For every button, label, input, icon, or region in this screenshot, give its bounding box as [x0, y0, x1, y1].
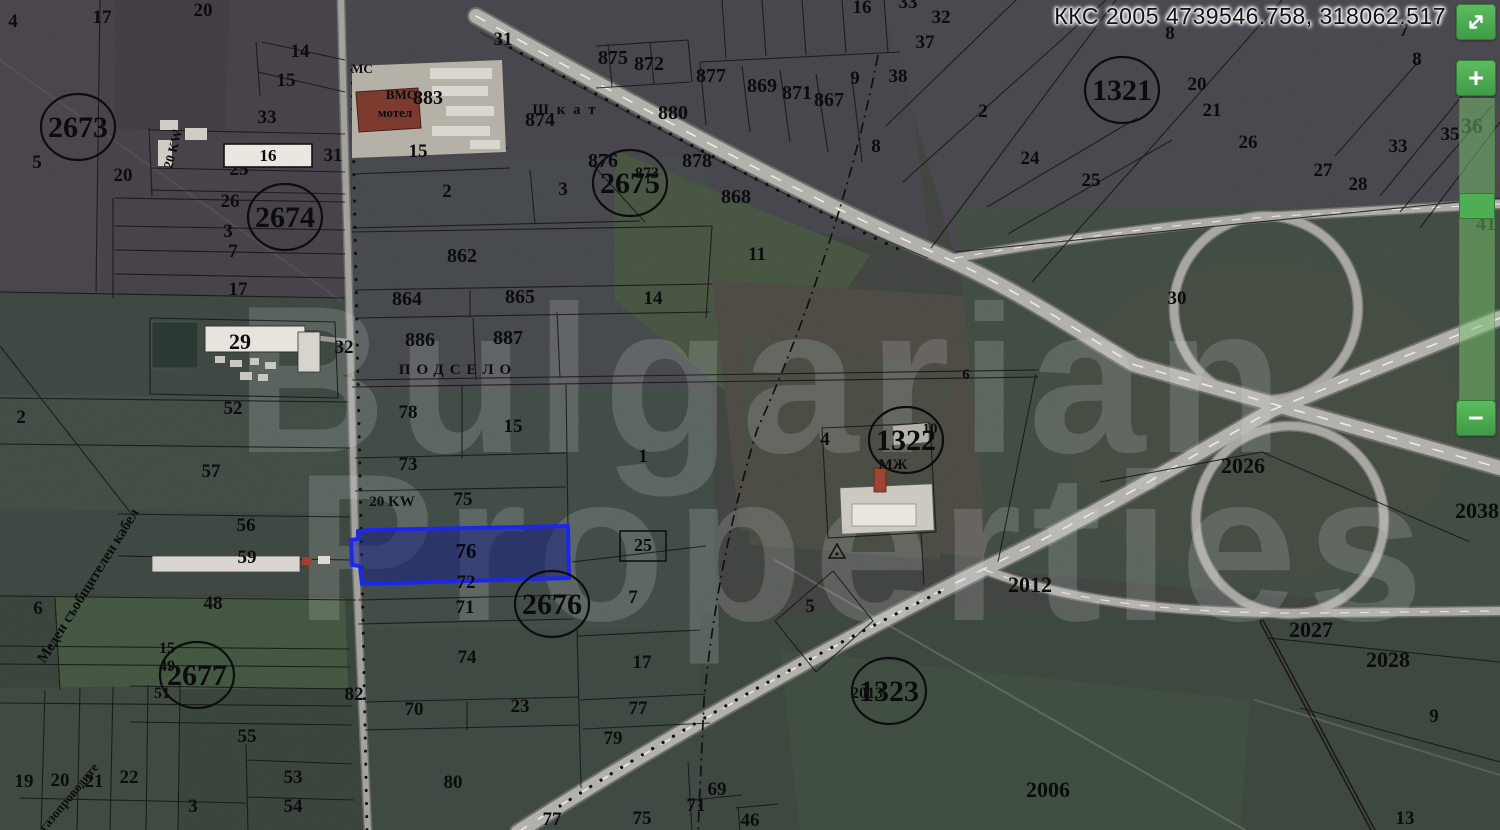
parcel-label: 3: [188, 796, 198, 817]
parcel-label: 2012: [1008, 572, 1052, 597]
parcel-label: 2027: [1289, 617, 1333, 642]
parcel-label: 55: [238, 726, 257, 747]
parcel-label: 71: [687, 795, 706, 816]
parcel-label: 24: [1021, 148, 1041, 169]
parcel-label: 75: [454, 489, 473, 510]
parcel-label: ВМС: [386, 87, 416, 102]
parcel-label: 21: [1203, 100, 1222, 121]
parcel-label: 872: [634, 53, 664, 75]
parcel-label: 7: [228, 241, 238, 262]
parcel-label: 23: [511, 696, 530, 717]
parcel-label: 6: [962, 367, 970, 383]
parcel-label: 14: [644, 288, 664, 309]
cadastral-region-number: 1321: [1092, 74, 1152, 107]
map-annotation-label: ПОДСЕЛО: [399, 362, 517, 378]
parcel-label: 7: [628, 587, 638, 608]
warehouse-building: [205, 326, 305, 352]
parcel-label: 20: [114, 165, 133, 186]
parcel-label: 13: [1396, 808, 1415, 829]
parcel-label: 867: [814, 89, 844, 111]
parcel-label: 38: [889, 66, 908, 87]
selected-parcel-number: 76: [456, 539, 477, 563]
parcel-label: 31: [494, 29, 513, 50]
parcel-label: 17: [633, 652, 653, 673]
fullscreen-button[interactable]: [1456, 4, 1496, 40]
diagonal-resize-icon: [1465, 11, 1487, 33]
parcel-label: 35: [1441, 124, 1460, 145]
parcel-label: 25: [1082, 170, 1101, 191]
parcel-label: 864: [392, 288, 422, 310]
parcel-label: 11: [748, 244, 766, 265]
parcel-label: 862: [447, 245, 477, 267]
zoom-in-button[interactable]: +: [1456, 60, 1496, 96]
parcel-label: 74: [458, 647, 478, 668]
parcel-label: 17: [93, 7, 113, 28]
parcel-label: 880: [658, 102, 688, 124]
parcel-label: 9: [850, 68, 860, 89]
parcel-label: 4: [8, 11, 18, 32]
parcel-label: 878: [682, 150, 712, 172]
parcel-label: 26: [1239, 132, 1258, 153]
parcel-label: МС: [351, 61, 373, 76]
parcel-label: 1: [638, 446, 648, 467]
parcel-label: 28: [1349, 174, 1368, 195]
parcel-label: 29: [229, 329, 251, 354]
cadastral-region-number: 2677: [167, 659, 227, 692]
parcel-label: 6: [33, 598, 43, 619]
parcel-label: 77: [543, 809, 563, 830]
parcel-label: 75: [633, 808, 652, 829]
cadastral-region-number: 2673: [48, 111, 108, 144]
parcel-label: 2: [978, 101, 988, 122]
parcel-label: 5: [805, 596, 815, 617]
parcel-label: 30: [1168, 288, 1187, 309]
parcel-label: 59: [238, 547, 257, 568]
parcel-label: 31: [324, 145, 343, 166]
parcel-label: 9: [1429, 706, 1439, 727]
parcel-label: 8: [1412, 49, 1422, 70]
parcel-label: 77: [629, 698, 649, 719]
cadastral-region-number: 2676: [522, 588, 582, 621]
parcel-label: 69: [708, 779, 727, 800]
parcel-label: 82: [345, 684, 364, 705]
parcel-label: 73: [399, 454, 418, 475]
parcel-label: 27: [1314, 160, 1334, 181]
parcel-label: 16: [853, 0, 872, 18]
parcel-label: 72: [457, 572, 476, 593]
parcel-label: 865: [505, 286, 535, 308]
zoom-slider-track[interactable]: [1459, 98, 1495, 400]
coordinate-display: ККС 2005 4739546.758, 318062.517: [1054, 3, 1446, 30]
parcel-label: 56: [237, 515, 256, 536]
cadastral-region-number: 1322: [876, 424, 936, 457]
parcel-label: 33: [258, 107, 277, 128]
parcel-label: 877: [696, 65, 726, 87]
parcel-label: 3: [223, 221, 233, 242]
parcel-label: 52: [224, 398, 243, 419]
parcel-label: 20: [1188, 74, 1207, 95]
parcel-label: мотел: [378, 105, 412, 120]
cadastral-region-number: 2674: [255, 201, 315, 234]
parcel-label: 70: [405, 699, 424, 720]
cadastral-region-number: 1323: [859, 675, 919, 708]
parcel-label: 5: [32, 152, 42, 173]
cadastral-region-number: 2675: [600, 167, 660, 200]
zoom-out-button[interactable]: −: [1456, 400, 1496, 436]
parcel-label: 2038: [1455, 498, 1499, 523]
parcel-label: 57: [202, 461, 222, 482]
parcel-label: 2006: [1026, 777, 1070, 802]
parcel-label: 16: [260, 146, 277, 165]
parcel-label: 4: [820, 429, 830, 450]
parcel-label: 871: [782, 82, 812, 104]
parcel-label: 2028: [1366, 647, 1410, 672]
parcel-label: 25: [634, 535, 652, 555]
parcel-label: 33: [1389, 136, 1408, 157]
parcel-label: 48: [204, 593, 223, 614]
parcel-label: 2: [442, 181, 452, 202]
map-annotation-label: Ш к а т: [532, 102, 597, 118]
parcel-label: 33: [899, 0, 918, 13]
parcel-label: 2: [16, 407, 26, 428]
parcel-label: 80: [444, 772, 463, 793]
parcel-label: 54: [284, 796, 304, 817]
parcel-label: 79: [604, 728, 623, 749]
parcel-label: 17: [229, 279, 249, 300]
map-canvas[interactable]: Bulgarian Properties: [0, 0, 1500, 830]
parcel-label: 8: [871, 136, 881, 157]
parcel-label: 868: [721, 186, 751, 208]
parcel-label: 887: [493, 327, 523, 349]
parcel-label: 37: [916, 32, 936, 53]
cadastral-map-viewer: Bulgarian Properties: [0, 0, 1500, 830]
parcel-label: 15: [409, 141, 428, 162]
parcel-label: 71: [456, 597, 475, 618]
parcel-label: 3: [558, 179, 568, 200]
parcel-label: 886: [405, 329, 435, 351]
parcel-label: 20: [194, 0, 213, 21]
parcel-label: 869: [747, 75, 777, 97]
parcel-label: 14: [291, 41, 311, 62]
parcel-label: 19: [15, 771, 34, 792]
parcel-label: 32: [335, 337, 354, 358]
parcel-label: 22: [120, 767, 139, 788]
parcel-label: 15: [277, 70, 296, 91]
zoom-slider-handle[interactable]: [1459, 193, 1495, 219]
parcel-label: 875: [598, 47, 628, 69]
parcel-label: 32: [932, 7, 951, 28]
parcel-label: 78: [399, 402, 418, 423]
parcel-label: 15: [504, 416, 523, 437]
parcel-label: 46: [741, 810, 760, 830]
parcel-label: 53: [284, 767, 303, 788]
parcel-label: 26: [221, 191, 240, 212]
parcel-label: 883: [413, 87, 443, 109]
parcel-label: 2026: [1221, 453, 1265, 478]
parcel-label: 20 KW: [369, 494, 414, 510]
